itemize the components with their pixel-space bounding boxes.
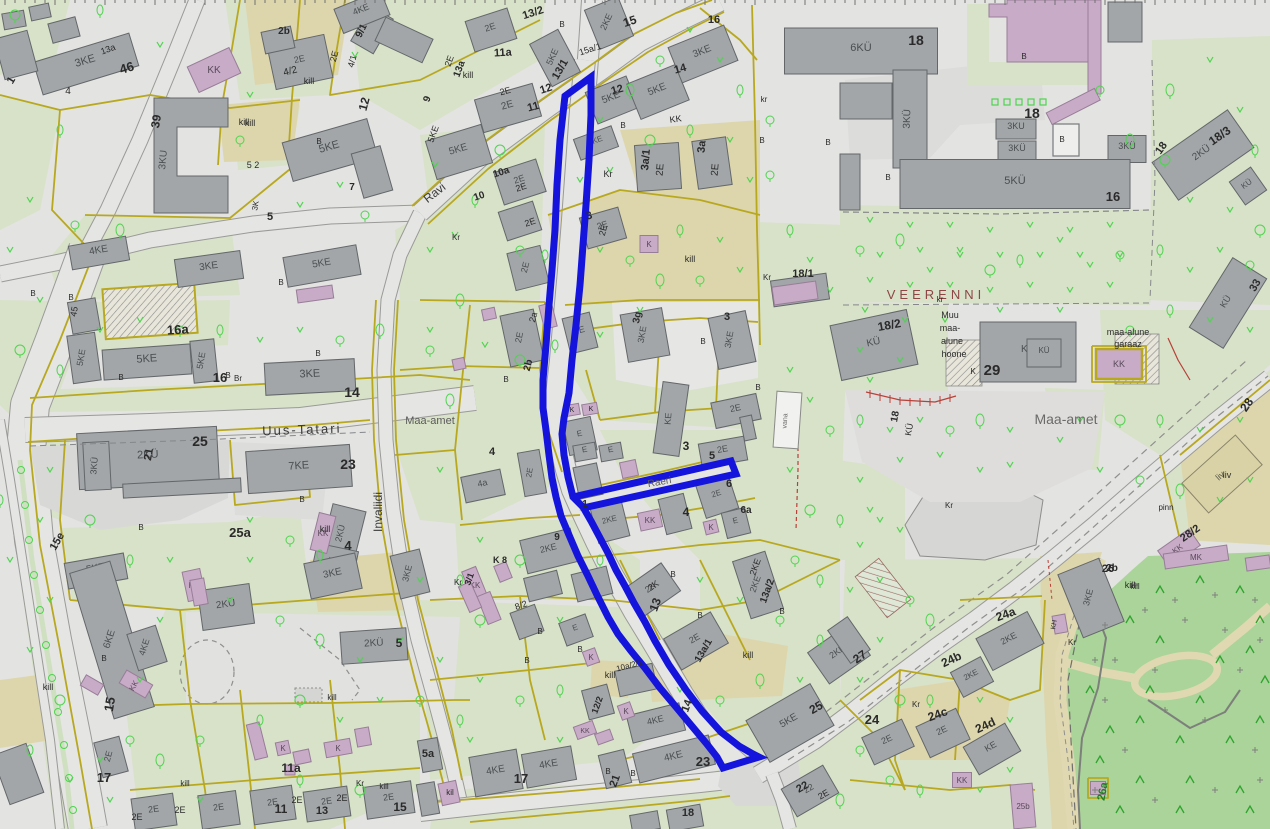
svg-text:14: 14 bbox=[344, 384, 360, 400]
svg-text:Kr: Kr bbox=[452, 233, 460, 242]
svg-text:25b: 25b bbox=[1016, 802, 1030, 811]
svg-text:18: 18 bbox=[908, 32, 924, 48]
svg-text:Invaliidi: Invaliidi bbox=[371, 492, 385, 532]
svg-text:B: B bbox=[1059, 135, 1064, 144]
svg-text:2E: 2E bbox=[174, 805, 185, 815]
svg-text:25: 25 bbox=[192, 433, 208, 449]
svg-text:29: 29 bbox=[984, 362, 1001, 379]
svg-text:Uus-Tatari: Uus-Tatari bbox=[262, 421, 342, 439]
svg-text:K: K bbox=[970, 367, 976, 376]
svg-text:garaaz: garaaz bbox=[1114, 339, 1142, 349]
svg-text:K: K bbox=[588, 653, 594, 662]
svg-text:5KÜ: 5KÜ bbox=[1004, 175, 1025, 187]
svg-text:7: 7 bbox=[349, 182, 355, 193]
svg-text:2E: 2E bbox=[716, 443, 729, 455]
svg-text:13: 13 bbox=[316, 805, 328, 817]
svg-text:17: 17 bbox=[514, 771, 528, 786]
svg-text:kill: kill bbox=[239, 117, 250, 127]
svg-text:2E: 2E bbox=[131, 812, 142, 822]
svg-text:maa-: maa- bbox=[940, 323, 961, 333]
svg-text:B: B bbox=[524, 656, 529, 665]
svg-text:5KE: 5KE bbox=[136, 352, 158, 365]
svg-text:B: B bbox=[885, 173, 890, 182]
svg-text:2b: 2b bbox=[1106, 563, 1118, 574]
svg-text:3KÜ: 3KÜ bbox=[88, 457, 99, 475]
svg-text:2E: 2E bbox=[212, 801, 224, 812]
svg-text:K: K bbox=[589, 406, 594, 413]
svg-text:5: 5 bbox=[709, 450, 715, 462]
svg-text:kill: kill bbox=[1130, 582, 1140, 591]
svg-text:2E: 2E bbox=[336, 793, 347, 803]
svg-text:K: K bbox=[646, 240, 652, 249]
svg-text:Kr: Kr bbox=[356, 779, 364, 788]
svg-text:3KU: 3KU bbox=[1007, 121, 1025, 131]
svg-text:B: B bbox=[1021, 52, 1026, 61]
svg-text:kill: kill bbox=[743, 650, 754, 660]
svg-text:6a: 6a bbox=[740, 505, 752, 516]
svg-text:4a: 4a bbox=[476, 477, 488, 489]
svg-text:B: B bbox=[68, 293, 73, 302]
svg-text:6: 6 bbox=[726, 478, 732, 490]
svg-text:B: B bbox=[225, 371, 230, 380]
svg-text:2b: 2b bbox=[278, 26, 290, 37]
svg-text:Maa-amet: Maa-amet bbox=[1034, 411, 1097, 427]
svg-text:11: 11 bbox=[275, 802, 288, 816]
svg-text:B: B bbox=[620, 121, 625, 130]
svg-text:B: B bbox=[630, 769, 635, 778]
svg-text:23: 23 bbox=[696, 754, 710, 769]
svg-text:25a: 25a bbox=[229, 525, 251, 540]
svg-text:23: 23 bbox=[340, 456, 356, 472]
svg-text:3KE: 3KE bbox=[299, 367, 320, 380]
svg-text:3a/1: 3a/1 bbox=[639, 149, 653, 171]
svg-text:B: B bbox=[779, 607, 784, 616]
svg-text:B: B bbox=[537, 627, 542, 636]
svg-text:21: 21 bbox=[142, 447, 156, 461]
svg-text:16a: 16a bbox=[167, 321, 190, 337]
svg-text:KK: KK bbox=[207, 65, 221, 76]
svg-text:kil: kil bbox=[446, 788, 454, 797]
svg-text:3g: 3g bbox=[631, 311, 644, 324]
svg-text:hoone: hoone bbox=[941, 349, 966, 359]
svg-text:16: 16 bbox=[1106, 189, 1120, 204]
svg-text:4: 4 bbox=[65, 86, 71, 97]
svg-text:3: 3 bbox=[683, 439, 690, 453]
svg-text:KÜ: KÜ bbox=[903, 422, 915, 436]
svg-text:KÜ: KÜ bbox=[1038, 346, 1049, 355]
svg-text:Muu: Muu bbox=[941, 310, 959, 320]
svg-text:KE: KE bbox=[663, 412, 674, 425]
svg-text:B: B bbox=[755, 383, 760, 392]
svg-text:9: 9 bbox=[554, 532, 560, 543]
svg-text:6KÜ: 6KÜ bbox=[850, 42, 871, 54]
svg-text:B: B bbox=[670, 570, 675, 579]
svg-text:5a: 5a bbox=[422, 748, 435, 760]
svg-text:B: B bbox=[700, 337, 705, 346]
svg-text:kill: kill bbox=[605, 670, 616, 680]
svg-text:B: B bbox=[138, 523, 143, 532]
svg-text:pinn: pinn bbox=[1158, 503, 1173, 512]
svg-text:KK: KK bbox=[580, 728, 590, 735]
svg-text:KK: KK bbox=[645, 516, 656, 525]
svg-text:Kr: Kr bbox=[1068, 638, 1076, 647]
svg-text:5 2: 5 2 bbox=[247, 160, 260, 170]
svg-text:B: B bbox=[759, 136, 764, 145]
svg-text:liv: liv bbox=[1223, 470, 1232, 480]
svg-text:K: K bbox=[708, 523, 714, 532]
svg-text:B: B bbox=[697, 611, 702, 620]
svg-text:3KÜ: 3KÜ bbox=[1008, 143, 1026, 153]
svg-text:5: 5 bbox=[267, 211, 273, 223]
svg-text:11a: 11a bbox=[494, 47, 513, 60]
svg-text:15: 15 bbox=[393, 800, 407, 814]
svg-text:2E: 2E bbox=[709, 163, 721, 176]
svg-text:KK: KK bbox=[957, 776, 968, 785]
svg-text:K: K bbox=[623, 707, 629, 716]
svg-text:B: B bbox=[278, 278, 283, 287]
svg-text:Kr: Kr bbox=[604, 169, 613, 179]
svg-text:Kr: Kr bbox=[912, 700, 920, 709]
svg-text:B: B bbox=[30, 289, 35, 298]
svg-text:Maa-amet: Maa-amet bbox=[405, 415, 455, 427]
svg-text:4: 4 bbox=[683, 505, 690, 519]
svg-text:Kr: Kr bbox=[763, 273, 771, 282]
svg-text:K: K bbox=[280, 744, 286, 753]
svg-text:B: B bbox=[559, 20, 564, 29]
svg-text:18: 18 bbox=[682, 807, 694, 819]
svg-text:kill: kill bbox=[379, 782, 389, 791]
svg-text:B: B bbox=[577, 645, 582, 654]
svg-text:2KÜ: 2KÜ bbox=[364, 636, 384, 649]
svg-text:Kr: Kr bbox=[945, 501, 953, 510]
svg-text:B: B bbox=[316, 137, 321, 146]
svg-text:B: B bbox=[299, 495, 304, 504]
svg-text:kr: kr bbox=[937, 295, 944, 304]
svg-text:11a: 11a bbox=[281, 761, 301, 775]
svg-text:B: B bbox=[825, 138, 830, 147]
svg-text:Kr: Kr bbox=[454, 578, 462, 587]
svg-text:B: B bbox=[605, 767, 610, 776]
svg-text:K: K bbox=[335, 744, 341, 753]
svg-text:K 8: K 8 bbox=[493, 555, 507, 565]
svg-text:2E: 2E bbox=[147, 803, 159, 814]
svg-text:B: B bbox=[101, 654, 106, 663]
svg-text:17: 17 bbox=[97, 770, 111, 785]
svg-text:K: K bbox=[570, 407, 575, 414]
svg-text:4: 4 bbox=[489, 446, 496, 458]
svg-text:vana: vana bbox=[781, 413, 789, 429]
svg-text:5: 5 bbox=[396, 636, 403, 650]
svg-text:24: 24 bbox=[865, 712, 880, 727]
svg-text:kr: kr bbox=[761, 95, 768, 104]
svg-text:KK: KK bbox=[669, 113, 682, 125]
svg-text:B: B bbox=[503, 375, 508, 384]
svg-text:3KU: 3KU bbox=[157, 150, 170, 170]
svg-text:MK: MK bbox=[1190, 553, 1203, 562]
svg-text:kill: kill bbox=[43, 682, 54, 692]
svg-text:alune: alune bbox=[941, 336, 963, 346]
svg-text:16: 16 bbox=[708, 14, 720, 26]
svg-text:kill: kill bbox=[685, 254, 696, 264]
svg-text:4: 4 bbox=[344, 538, 352, 553]
svg-text:3KÜ: 3KÜ bbox=[901, 109, 914, 129]
svg-text:15: 15 bbox=[101, 696, 118, 713]
svg-text:18/1: 18/1 bbox=[792, 268, 813, 280]
svg-text:B: B bbox=[118, 373, 123, 382]
svg-text:Br: Br bbox=[234, 374, 242, 383]
svg-text:3a: 3a bbox=[696, 139, 709, 153]
svg-text:39: 39 bbox=[148, 113, 164, 129]
svg-text:1: 1 bbox=[582, 499, 588, 510]
svg-text:kill: kill bbox=[320, 524, 331, 534]
svg-text:kill: kill bbox=[327, 693, 337, 702]
svg-text:45: 45 bbox=[68, 306, 80, 318]
svg-text:kill: kill bbox=[304, 76, 315, 86]
svg-text:B: B bbox=[315, 349, 320, 358]
svg-text:2E: 2E bbox=[291, 795, 302, 805]
svg-text:kill: kill bbox=[180, 779, 190, 788]
svg-text:maa-alune: maa-alune bbox=[1107, 327, 1150, 337]
svg-text:18: 18 bbox=[1024, 105, 1040, 121]
svg-text:7KE: 7KE bbox=[288, 459, 310, 472]
svg-text:3: 3 bbox=[724, 311, 730, 323]
svg-text:2E: 2E bbox=[654, 163, 666, 176]
svg-text:KK: KK bbox=[1113, 359, 1125, 369]
svg-text:2E: 2E bbox=[524, 467, 535, 478]
